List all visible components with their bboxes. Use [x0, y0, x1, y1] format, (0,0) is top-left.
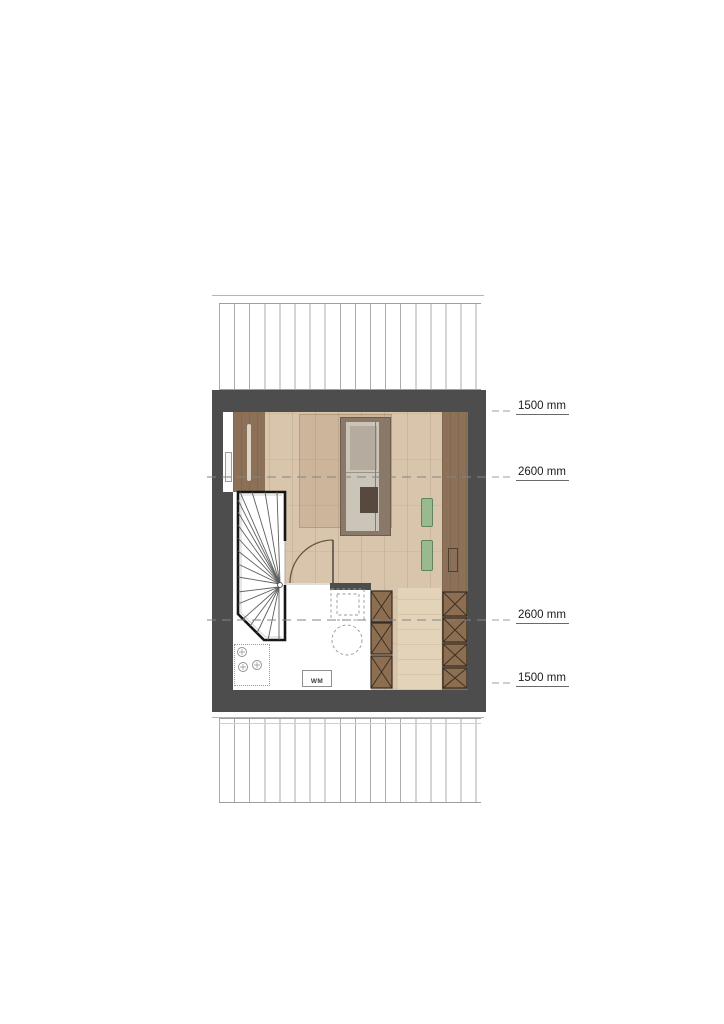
- bed-pillow: [350, 426, 377, 470]
- wood-strip-between-storage: [398, 588, 441, 690]
- left-wall-lower: [223, 492, 233, 690]
- dimension-text: 2600 mm: [516, 609, 569, 624]
- roof-window: [448, 548, 458, 572]
- floor-plan-canvas: WM: [0, 0, 724, 1024]
- washing-machine-label: WM: [311, 678, 323, 686]
- washing-machine: WM: [302, 670, 332, 687]
- dimension-text: 1500 mm: [516, 400, 569, 415]
- roof-hatching-bottom: [219, 718, 481, 803]
- dimension-label-1500-top: 1500 mm: [516, 400, 569, 415]
- dimension-text: 1500 mm: [516, 672, 569, 687]
- dimension-label-2600-lower: 2600 mm: [516, 609, 569, 624]
- roof-hatching-top: [219, 303, 481, 390]
- dimension-label-1500-bottom: 1500 mm: [516, 672, 569, 687]
- cushion-2: [421, 540, 433, 571]
- roof-edge-line-top: [212, 295, 484, 296]
- dimension-label-2600-upper: 2600 mm: [516, 466, 569, 481]
- cushion-1: [421, 498, 433, 527]
- counter-dashed: [234, 644, 270, 686]
- bathroom-wall: [330, 583, 371, 590]
- radiator: [247, 424, 251, 481]
- bed-rail-line: [375, 422, 376, 531]
- dimension-text: 2600 mm: [516, 466, 569, 481]
- page: { "plan": { "type": "attic floor plan", …: [0, 0, 724, 1024]
- bed-blanket: [360, 487, 378, 513]
- left-niche-cabinet: [225, 452, 232, 482]
- stair-side-gap: [233, 492, 238, 583]
- roof-inner-line-bottom: [219, 723, 481, 724]
